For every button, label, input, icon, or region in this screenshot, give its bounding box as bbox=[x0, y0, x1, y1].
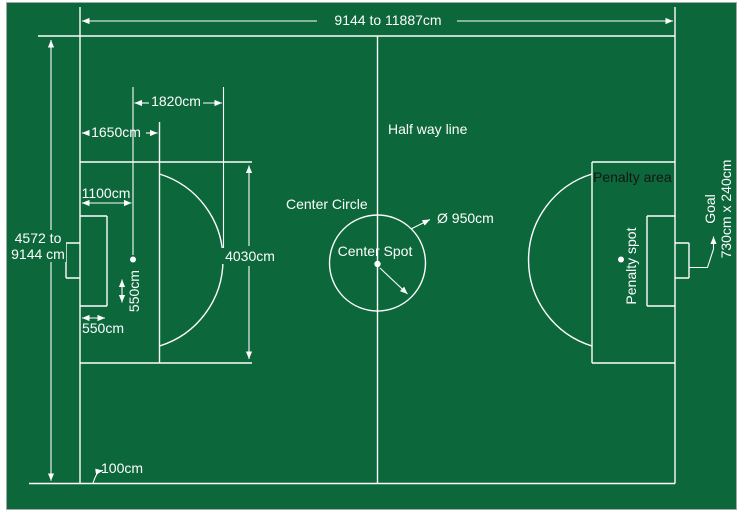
goal-size-label: Goal 730cm x 240cm bbox=[702, 155, 734, 263]
goal-size-label-line1: Goal bbox=[702, 155, 718, 263]
penalty-spot-label: Penalty spot bbox=[623, 226, 639, 306]
dim-1100-label: 1100cm bbox=[79, 185, 133, 201]
circle-diameter-label: Ø 950cm bbox=[437, 210, 494, 226]
center-spot-dot bbox=[374, 261, 380, 267]
dim-550-vertical-label: 550cm bbox=[126, 269, 142, 313]
radius-arrow bbox=[380, 268, 408, 294]
dim-550-horizontal-label: 550cm bbox=[78, 320, 128, 336]
field-width-label-line2: 9144 cm bbox=[10, 246, 66, 262]
left-penalty-arc bbox=[160, 174, 223, 346]
half-way-line-label: Half way line bbox=[388, 121, 467, 137]
leader-diameter bbox=[411, 220, 430, 230]
right-penalty-arc bbox=[529, 174, 592, 346]
dim-1820-extensions bbox=[133, 87, 224, 257]
field-width-label-line1: 4572 to bbox=[10, 230, 66, 246]
dim-1820-label: 1820cm bbox=[146, 93, 206, 109]
left-penalty-spot-dot bbox=[130, 257, 136, 263]
center-circle-label: Center Circle bbox=[286, 196, 368, 212]
dim-4030-label: 4030cm bbox=[219, 248, 281, 264]
pitch-dimensions-diagram: 9144 to 11887cm 4572 to 9144 cm 1820cm 1… bbox=[0, 0, 743, 515]
field-width-label: 4572 to 9144 cm bbox=[10, 230, 66, 262]
field-length-label: 9144 to 11887cm bbox=[320, 12, 456, 28]
penalty-area-label: Penalty area bbox=[593, 169, 672, 185]
line-width-label: 100cm bbox=[101, 460, 143, 476]
goal-size-label-line2: 730cm x 240cm bbox=[718, 155, 734, 263]
center-spot-label: Center Spot bbox=[336, 243, 414, 259]
dim-1650-label: 1650cm bbox=[86, 124, 146, 140]
